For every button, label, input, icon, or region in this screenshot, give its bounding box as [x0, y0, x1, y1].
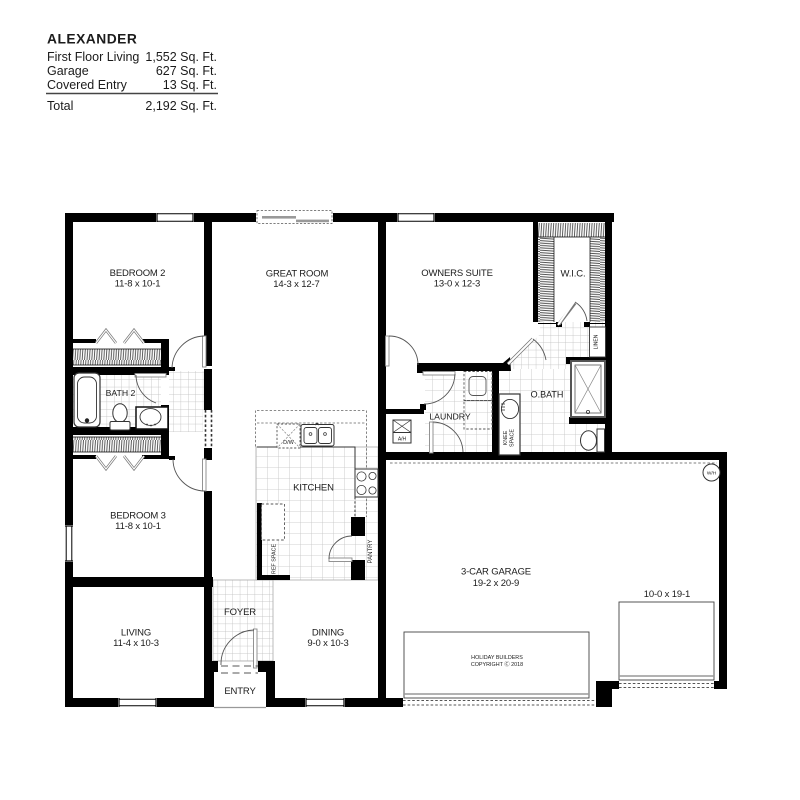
svg-text:13 Sq. Ft.: 13 Sq. Ft. — [163, 78, 217, 92]
svg-text:A/H: A/H — [398, 437, 407, 443]
svg-text:11-8 x 10-1: 11-8 x 10-1 — [115, 279, 161, 290]
svg-text:HOLIDAY BUILDERS: HOLIDAY BUILDERS — [471, 655, 523, 661]
svg-text:ENTRY: ENTRY — [224, 686, 256, 697]
svg-text:Garage: Garage — [47, 64, 89, 78]
svg-text:14-3 x 12-7: 14-3 x 12-7 — [273, 279, 319, 290]
svg-text:PANTRY: PANTRY — [368, 540, 374, 564]
svg-text:DINING: DINING — [312, 628, 344, 639]
svg-text:627 Sq. Ft.: 627 Sq. Ft. — [156, 64, 217, 78]
svg-text:BEDROOM 2: BEDROOM 2 — [110, 268, 166, 279]
svg-text:KITCHEN: KITCHEN — [293, 483, 334, 494]
svg-text:W.I.C.: W.I.C. — [561, 269, 586, 280]
svg-text:BEDROOM 3: BEDROOM 3 — [110, 511, 166, 522]
svg-text:BATH 2: BATH 2 — [106, 388, 136, 398]
svg-text:13-0 x 12-3: 13-0 x 12-3 — [434, 279, 480, 290]
svg-text:1,552 Sq. Ft.: 1,552 Sq. Ft. — [145, 50, 217, 64]
svg-text:ALEXANDER: ALEXANDER — [47, 32, 137, 47]
svg-text:2,192 Sq. Ft.: 2,192 Sq. Ft. — [145, 99, 217, 113]
svg-text:19-2 x 20-9: 19-2 x 20-9 — [473, 578, 519, 589]
svg-text:LINEN: LINEN — [594, 334, 600, 349]
svg-text:11-4 x 10-3: 11-4 x 10-3 — [113, 638, 159, 649]
svg-text:Total: Total — [47, 99, 73, 113]
svg-text:Covered Entry: Covered Entry — [47, 78, 128, 92]
svg-text:LAUNDRY: LAUNDRY — [429, 412, 471, 422]
svg-text:W/H: W/H — [707, 471, 717, 477]
svg-text:D/W: D/W — [283, 440, 295, 446]
svg-text:COPYRIGHT Ⓒ 2018: COPYRIGHT Ⓒ 2018 — [471, 660, 523, 668]
svg-text:9-0 x 10-3: 9-0 x 10-3 — [307, 638, 348, 649]
svg-text:10-0 x 19-1: 10-0 x 19-1 — [644, 589, 690, 600]
svg-text:First Floor Living: First Floor Living — [47, 50, 139, 64]
svg-text:FOYER: FOYER — [224, 607, 256, 618]
svg-text:O.BATH: O.BATH — [531, 390, 564, 400]
svg-text:OWNERS SUITE: OWNERS SUITE — [421, 268, 493, 279]
svg-text:REF SPACE: REF SPACE — [272, 544, 278, 575]
svg-text:3-CAR GARAGE: 3-CAR GARAGE — [461, 567, 531, 578]
svg-text:SPACE: SPACE — [510, 429, 516, 447]
svg-text:LIVING: LIVING — [121, 628, 151, 639]
svg-text:GREAT ROOM: GREAT ROOM — [266, 269, 329, 280]
svg-text:11-8 x 10-1: 11-8 x 10-1 — [115, 521, 161, 532]
svg-text:KNEE: KNEE — [503, 430, 509, 445]
